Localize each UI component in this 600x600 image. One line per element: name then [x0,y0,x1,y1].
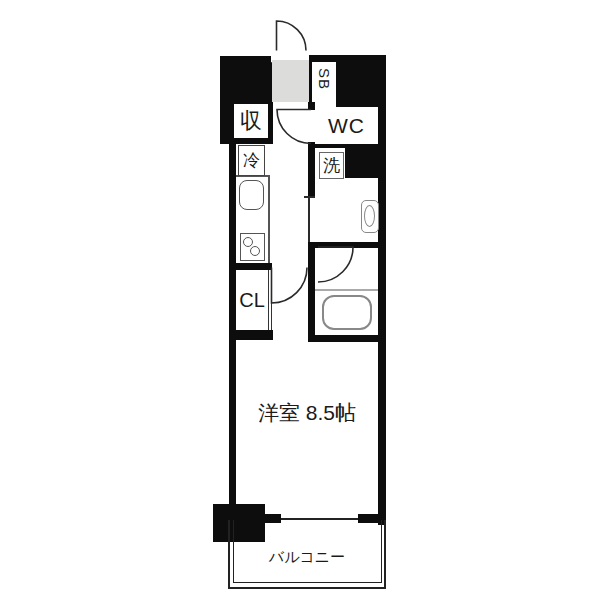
washbasin-bowl-icon [364,205,375,227]
washroom-door [308,198,310,242]
duct-block [345,148,378,178]
balcony-label: バルコニー [236,544,378,570]
wall-bath-bottom [308,335,386,342]
wall-mid-b [308,102,315,110]
kitchen-sink-fixture [239,180,264,210]
floor-plan: 収 冷 SB WC 洗 CL 洋室 8.5帖 バルコニー [0,0,600,600]
main-room-label: 洋室 8.5帖 [236,386,378,440]
storage-label: 収 [234,104,268,138]
kitchen-counter-side [268,175,270,263]
wall-mid-c [308,142,315,198]
washer-label: 洗 [319,152,344,179]
shoebox-label: SB [303,68,347,91]
room-door-nook [272,263,309,340]
closet-label: CL [236,270,268,330]
bath-partition-line [315,289,378,291]
wall-bath-top [308,242,386,248]
wall-mid-e [308,242,315,342]
wall-kitchen-closet [229,263,272,270]
wall-right [378,56,386,525]
entrance-door-swing-icon [277,21,307,51]
hall-area [272,100,309,144]
wc-label: WC [315,107,378,144]
bathtub-fixture [322,295,372,330]
wall-closet-bottom [229,330,273,340]
stove-burner-icon [250,246,260,256]
washroom-door-tick [304,196,315,198]
fridge-label: 冷 [238,145,265,176]
stove-burner-icon [243,237,253,247]
closet-door [268,270,272,330]
